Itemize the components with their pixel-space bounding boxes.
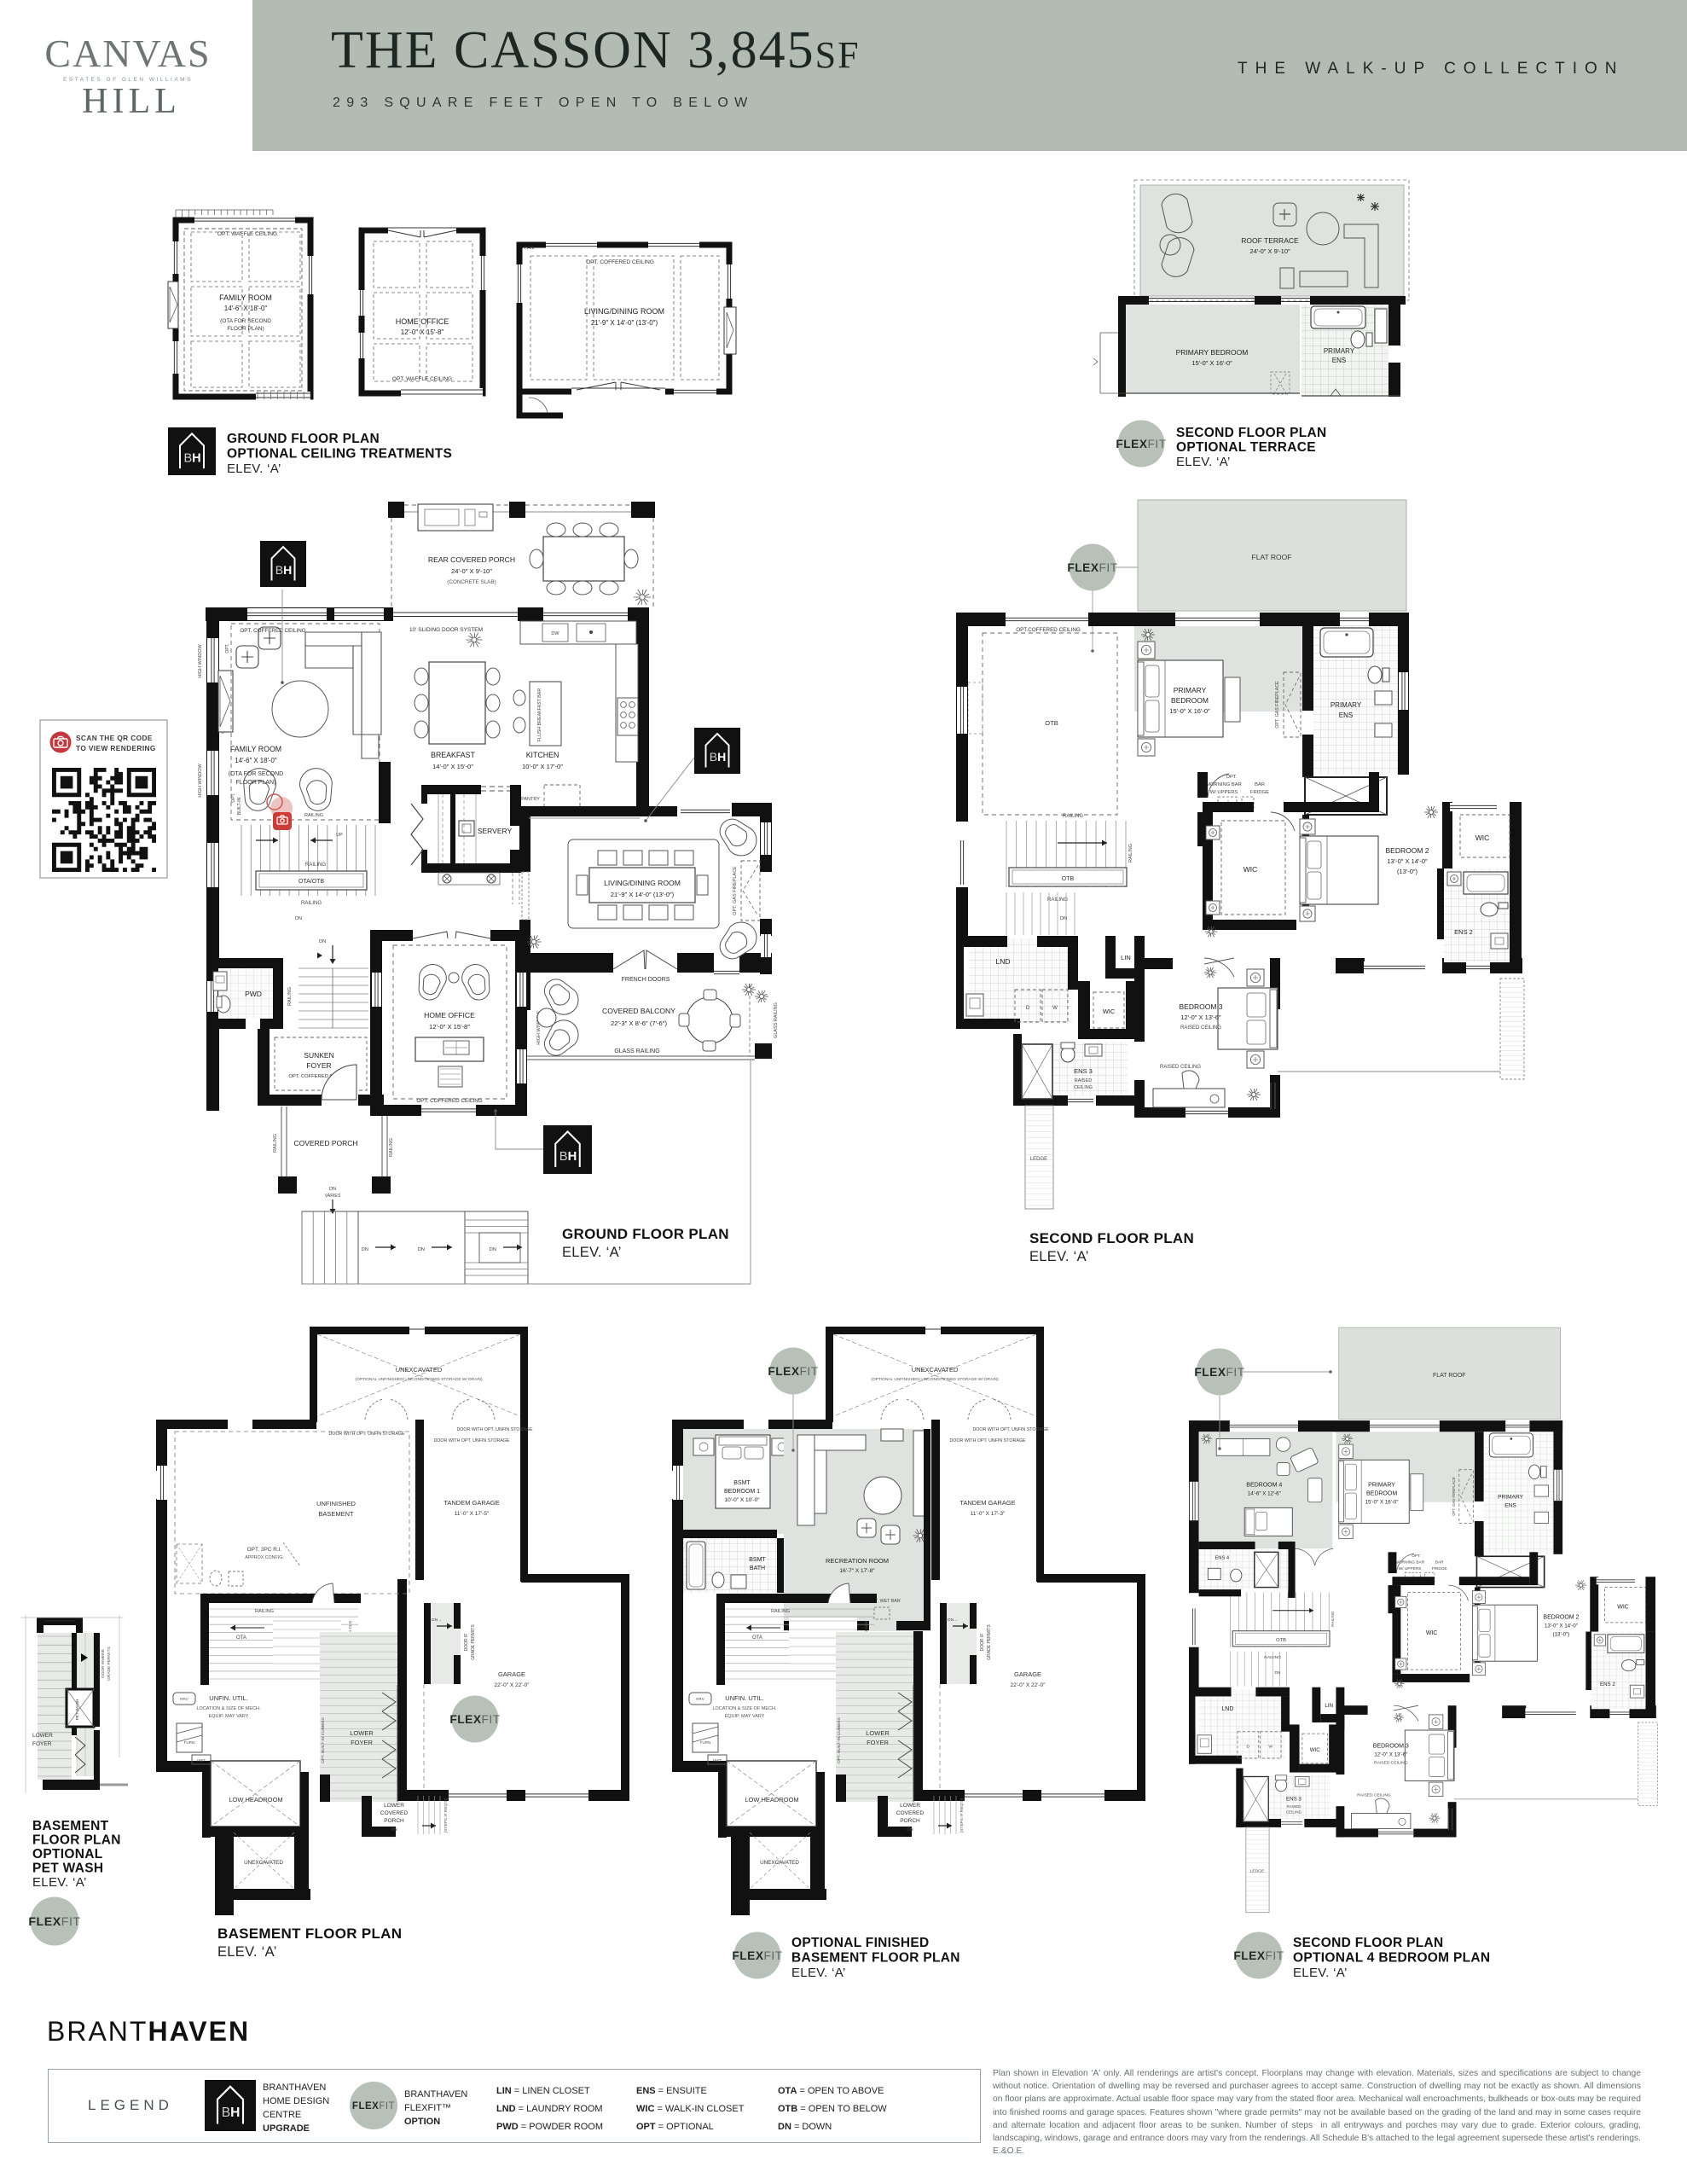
svg-text:13′-0″ X 14′-0″: 13′-0″ X 14′-0″ xyxy=(1545,1623,1579,1629)
svg-text:WIC: WIC xyxy=(1310,1747,1321,1753)
svg-text:W: W xyxy=(1268,1745,1272,1750)
svg-text:WIC: WIC xyxy=(1617,1604,1629,1610)
svg-text:W/ UPPERS: W/ UPPERS xyxy=(1399,1566,1422,1571)
svg-text:PRIMARY: PRIMARY xyxy=(1498,1495,1524,1501)
svg-text:ENS: ENS xyxy=(1504,1503,1516,1509)
svg-text:15′-0″ X 16′-0″: 15′-0″ X 16′-0″ xyxy=(1365,1499,1400,1505)
svg-text:FLEXFIT: FLEXFIT xyxy=(1194,1366,1244,1379)
svg-text:SECOND FLOOR PLAN: SECOND FLOOR PLAN xyxy=(1293,1936,1443,1950)
svg-text:CEILING: CEILING xyxy=(1286,1809,1302,1814)
svg-text:FLAT ROOF: FLAT ROOF xyxy=(1433,1373,1466,1379)
svg-text:ENS 3: ENS 3 xyxy=(1286,1797,1301,1803)
svg-text:OPT.: OPT. xyxy=(1412,1554,1421,1559)
svg-text:LIN: LIN xyxy=(1325,1703,1333,1709)
svg-text:BEDROOM: BEDROOM xyxy=(1366,1491,1397,1497)
svg-text:14′-6″ X 12′-6″: 14′-6″ X 12′-6″ xyxy=(1248,1491,1282,1497)
svg-text:BEDROOM 2: BEDROOM 2 xyxy=(1543,1615,1579,1621)
svg-text:(13′-0″): (13′-0″) xyxy=(1553,1631,1570,1637)
svg-text:DN: DN xyxy=(1275,1670,1281,1676)
svg-text:PRIMARY: PRIMARY xyxy=(1368,1483,1395,1489)
svg-text:OPTIONAL 4 BEDROOM PLAN: OPTIONAL 4 BEDROOM PLAN xyxy=(1293,1951,1490,1966)
svg-text:FRIDGE: FRIDGE xyxy=(1432,1566,1447,1571)
svg-text:LEDGE: LEDGE xyxy=(1250,1869,1265,1874)
svg-text:ELEV. ‘A’: ELEV. ‘A’ xyxy=(1293,1966,1348,1980)
svg-text:BEDROOM 4: BEDROOM 4 xyxy=(1246,1483,1282,1489)
svg-text:OPT. GAS FIREPLACE: OPT. GAS FIREPLACE xyxy=(1452,1477,1456,1516)
svg-text:RAISED CEILING: RAISED CEILING xyxy=(1374,1761,1408,1766)
svg-text:12′-0″ X 13′-6″: 12′-0″ X 13′-6″ xyxy=(1374,1752,1408,1758)
svg-text:D: D xyxy=(1247,1745,1250,1750)
svg-text:ENS 4: ENS 4 xyxy=(1215,1556,1229,1561)
svg-text:LND: LND xyxy=(1221,1706,1233,1712)
svg-text:WIC: WIC xyxy=(1426,1630,1438,1636)
svg-text:RAISED: RAISED xyxy=(1287,1804,1302,1809)
svg-text:ENS 2: ENS 2 xyxy=(1600,1682,1615,1687)
svg-text:OTB: OTB xyxy=(1276,1638,1286,1643)
svg-text:RAILING: RAILING xyxy=(1330,1611,1335,1627)
svg-text:FLEXFIT: FLEXFIT xyxy=(1233,1949,1284,1962)
svg-text:BAR: BAR xyxy=(1435,1560,1444,1565)
svg-text:BEDROOM 3: BEDROOM 3 xyxy=(1373,1744,1409,1750)
svg-text:RAISED CEILING: RAISED CEILING xyxy=(1357,1793,1391,1798)
